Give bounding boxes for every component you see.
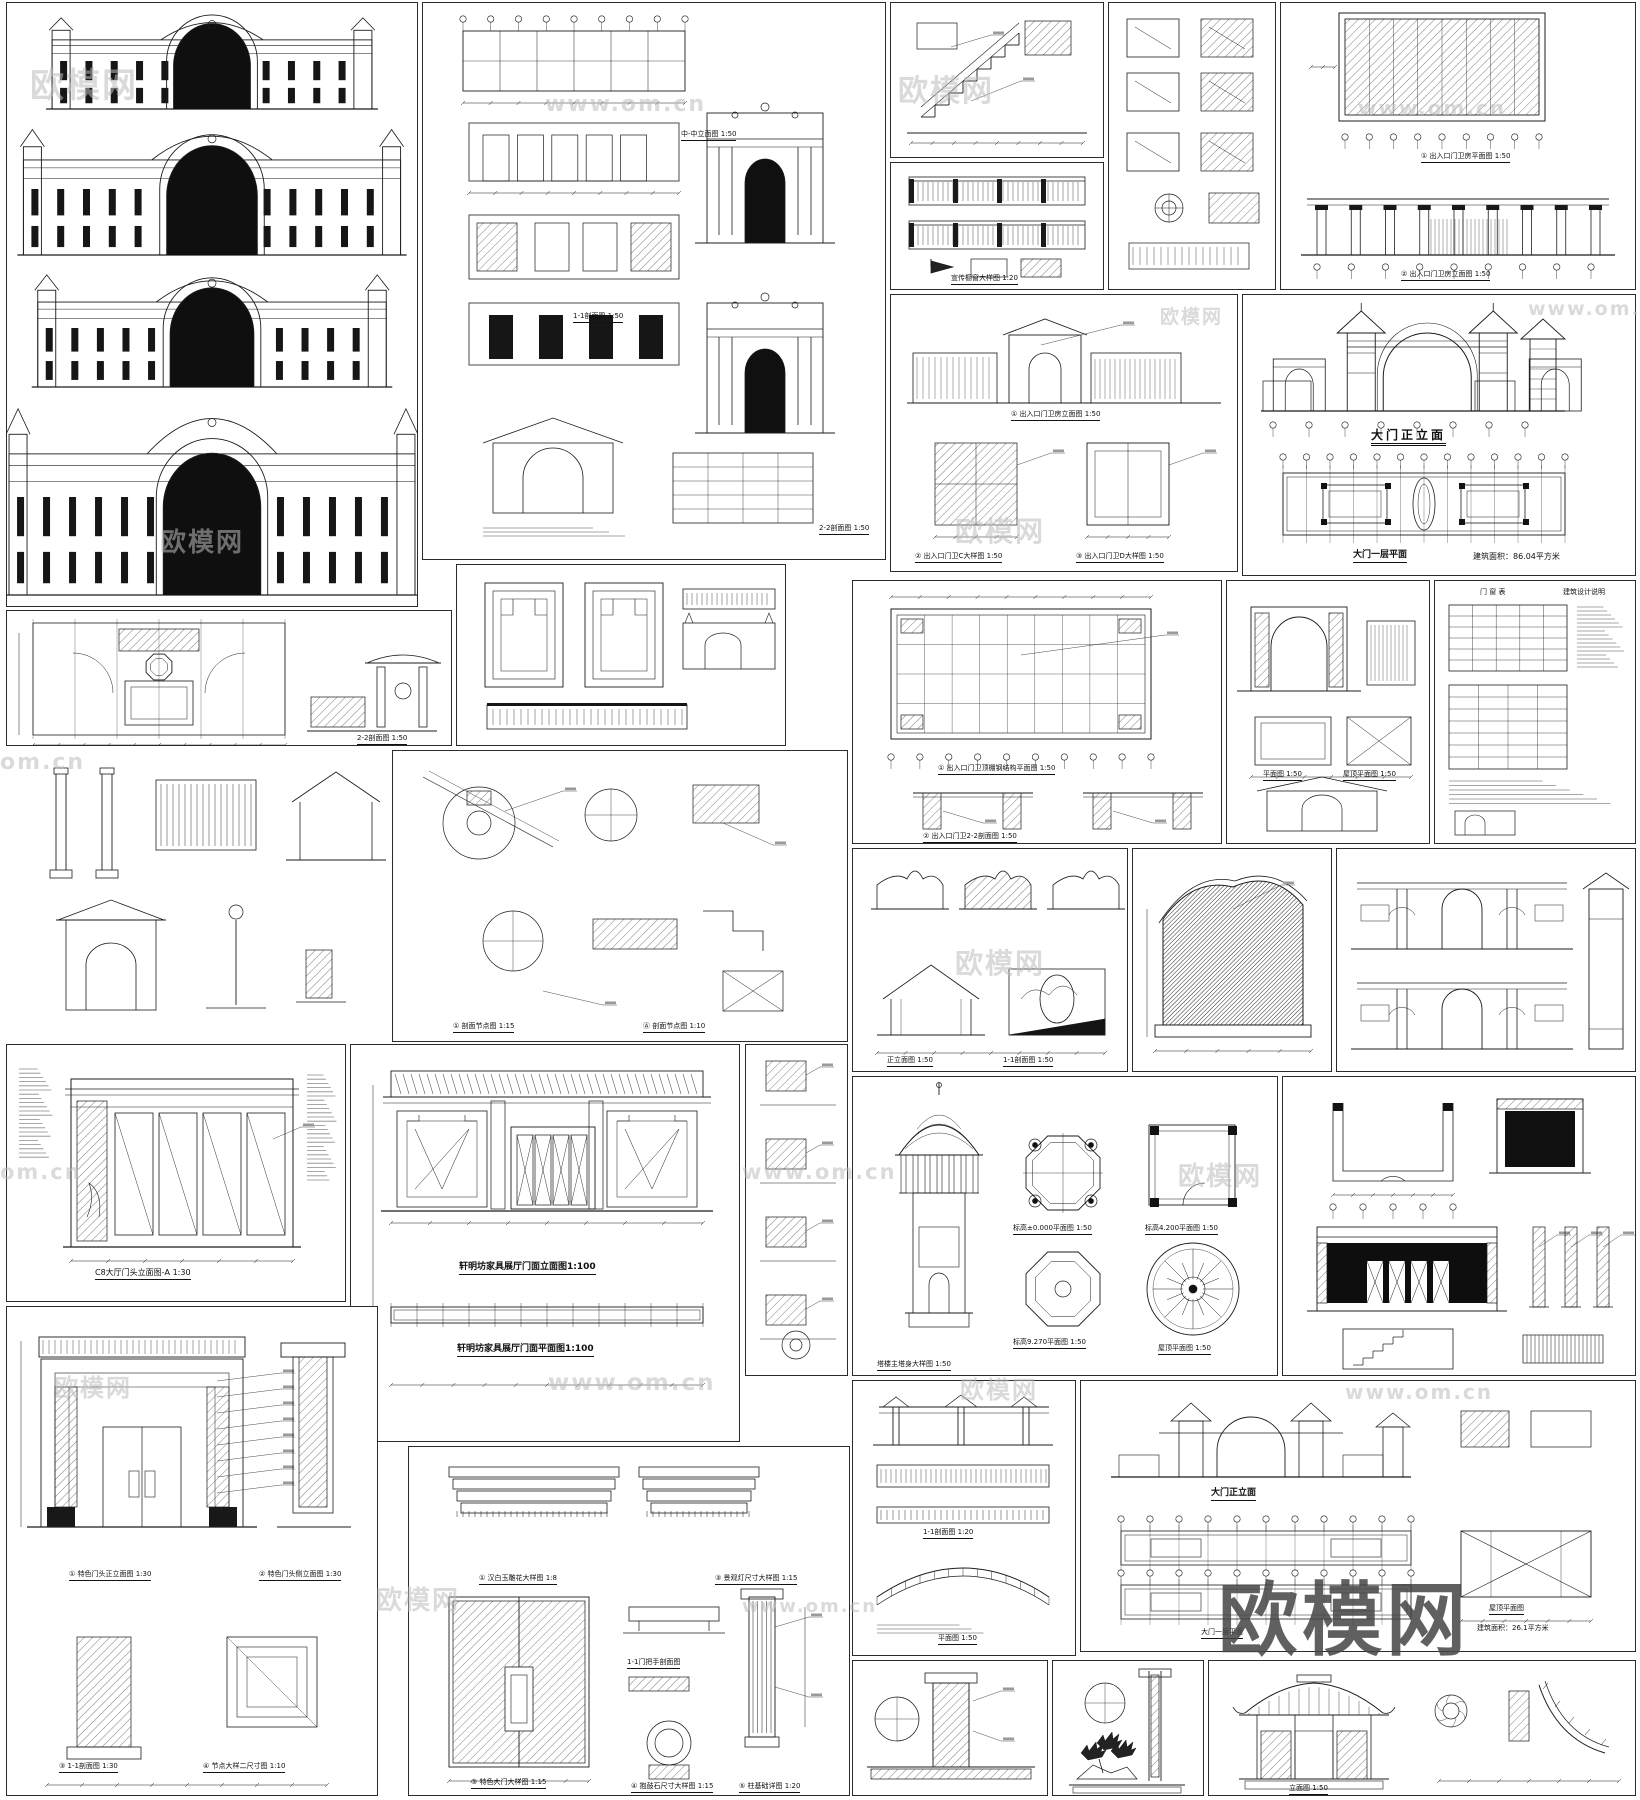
cad-drawing [409, 1447, 849, 1795]
cad-drawing [7, 3, 417, 606]
cad-drawing [891, 295, 1237, 571]
sheet-guardhouse-elevation-details: ① 出入口门卫房立面图 1:50 ② 出入口门卫C大样图 1:50 ③ 出入口门… [890, 294, 1238, 572]
sheet-stair-detail [890, 2, 1104, 158]
drawing-caption: 屋顶平面图 1:50 [1158, 1345, 1211, 1355]
drawing-caption: 屋顶平面图 1:50 [1343, 771, 1396, 781]
drawing-caption: 2-2剖面图 1:50 [357, 735, 407, 745]
sheet-screen-wall: 正立面图 1:50 1-1剖面图 1:50 [852, 848, 1128, 1072]
drawing-caption: ① 特色门头正立面图 1:30 [69, 1571, 151, 1581]
drawing-caption: ② 出入口门卫房立面图 1:50 [1401, 271, 1490, 281]
drawing-caption: ① 出入口门卫房平面图 1:50 [1421, 153, 1510, 163]
cad-drawing [1209, 1661, 1635, 1795]
drawing-caption: ③ 出入口门卫D大样图 1:50 [1076, 553, 1164, 563]
cad-drawing [7, 1045, 345, 1301]
drawing-caption: 立面图 1:50 [1289, 1785, 1328, 1795]
cad-drawing [7, 611, 451, 745]
sheet-gate-elevation-plans: 大门正立面 大门一层平面 屋顶平面图 建筑面积：26.1平方米 [1080, 1380, 1636, 1652]
drawing-caption: 2-2剖面图 1:50 [819, 525, 869, 535]
drawing-caption: 平面图 1:50 [1263, 771, 1302, 781]
sheet-cloud-wall-detail [1132, 848, 1332, 1072]
drawing-caption: 1-1剖面图 1:20 [923, 1529, 973, 1539]
sheet-tower-plans: 标高±0.000平面图 1:50 标高4.200平面图 1:50 标高9.270… [852, 1076, 1278, 1376]
drawing-caption: ② 出入口门卫C大样图 1:50 [915, 553, 1002, 563]
sheet-landscape-wall-tree [1052, 1660, 1204, 1796]
drawing-caption: ① 出入口门卫顶棚钢结构平面图 1:50 [938, 765, 1055, 775]
sheet-xuanmingfang-storefront: 轩明坊家具展厅门面立面图1:100 轩明坊家具展厅门面平面图1:100 [350, 1044, 740, 1442]
drawing-caption: ① 出入口门卫房立面图 1:50 [1011, 411, 1100, 421]
sheet-detail-strip [745, 1044, 848, 1376]
drawing-caption: 1-1门把手剖面图 [627, 1659, 680, 1669]
cad-drawing [1133, 849, 1331, 1071]
cad-drawing [351, 1045, 739, 1441]
cad-drawing [7, 1307, 377, 1795]
sheet-feature-doorway: ① 特色门头正立面图 1:30 ② 特色门头侧立面图 1:30 ③ 1-1剖面图… [6, 1306, 378, 1796]
sheet-pillar-detail [852, 1660, 1048, 1796]
drawing-caption: ④ 节点大样二尺寸图 1:10 [203, 1763, 285, 1773]
sheet-pavilion-eave-details: 立面图 1:50 [1208, 1660, 1636, 1796]
drawing-caption: 平面图 1:50 [938, 1635, 977, 1645]
cad-drawing [746, 1045, 847, 1375]
sheet-c8-hall-storefront: C8大厅门头立面图-A 1:30 [6, 1044, 346, 1302]
drawing-caption: 宣传橱窗大样图 1:20 [951, 275, 1018, 285]
drawing-caption: ③ 1-1剖面图 1:30 [59, 1763, 118, 1773]
drawing-caption: 轩明坊家具展厅门面立面图1:100 [459, 1263, 596, 1275]
cad-drawing [891, 3, 1103, 157]
drawing-caption: 塔楼主塔身大样图 1:50 [877, 1361, 951, 1371]
drawing-caption: 中-中立面图 1:50 [681, 131, 736, 141]
sheet-arch-plan-details: 平面图 1:50 屋顶平面图 1:50 [1226, 580, 1430, 844]
notes-title: 建筑设计说明 [1563, 589, 1605, 598]
drawing-caption: 1-1剖面图 1:50 [573, 313, 623, 323]
drawing-caption: 正立面图 1:50 [887, 1057, 933, 1067]
drawing-caption: ③ 景观灯尺寸大样图 1:15 [715, 1575, 797, 1585]
drawing-caption: 标高±0.000平面图 1:50 [1013, 1225, 1092, 1235]
drawing-caption: ② 出入口门卫2-2剖面图 1:50 [923, 833, 1017, 843]
cad-drawing [853, 1661, 1047, 1795]
sheet-gate-plan-octagon: 2-2剖面图 1:50 [6, 610, 452, 746]
drawing-caption: 大门正立面 [1211, 1489, 1256, 1501]
cad-drawing [1109, 3, 1275, 289]
cad-drawing [1227, 581, 1429, 843]
sheet-marble-door-details: ① 汉白玉雕花大样图 1:8 ③ 景观灯尺寸大样图 1:15 1-1门把手剖面图… [408, 1446, 850, 1796]
sheet-ornate-gate-elevations [6, 2, 418, 607]
sheet-stone-frame-details [456, 564, 786, 746]
cad-drawing [1337, 849, 1635, 1071]
sheet-main-gate-front-elevation: 大门正立面 大门一层平面 建筑面积：86.04平方米 [1242, 294, 1636, 576]
sheet-gate-plan-elevations: 中-中立面图 1:50 1-1剖面图 1:50 2-2剖面图 1:50 [422, 2, 886, 560]
drawing-caption: ④ 抱鼓石尺寸大样图 1:15 [631, 1783, 713, 1793]
drawing-caption: 建筑面积：86.04平方米 [1473, 553, 1560, 563]
drawing-caption: 大门正立面 [1371, 429, 1446, 446]
sheet-bridge-railing: 1-1剖面图 1:20 平面图 1:50 [852, 1380, 1076, 1656]
drawing-caption: ⑤ 柱基础详图 1:20 [739, 1783, 800, 1793]
cad-drawing [457, 565, 785, 745]
cad-drawing [1053, 1661, 1203, 1795]
cad-drawing [853, 1381, 1075, 1655]
drawing-caption: 1-1剖面图 1:50 [1003, 1057, 1053, 1067]
drawing-caption: Ⓐ 剖面节点图 1:10 [643, 1023, 705, 1033]
sheet-door-window-schedule: 门 窗 表 建筑设计说明 [1434, 580, 1636, 844]
sheet-gatehouse-dark-elevations [1282, 1076, 1636, 1376]
cad-drawing [891, 163, 1103, 289]
sheet-section-node-details: ① 剖面节点图 1:15 Ⓐ 剖面节点图 1:10 [392, 750, 848, 1042]
sheet-steel-roof-structure-plan: ① 出入口门卫顶棚钢结构平面图 1:50 ② 出入口门卫2-2剖面图 1:50 [852, 580, 1222, 844]
cad-drawing [853, 581, 1221, 843]
cad-drawing [6, 750, 388, 1040]
cad-collage-page: 中-中立面图 1:50 1-1剖面图 1:50 2-2剖面图 1:50 宣传橱窗… [0, 0, 1640, 1800]
area-note: 建筑面积：26.1平方米 [1477, 1625, 1549, 1634]
drawing-caption: 标高4.200平面图 1:50 [1145, 1225, 1218, 1235]
sheet-fence-details: 宣传橱窗大样图 1:20 [890, 162, 1104, 290]
drawing-caption: ② 特色门头侧立面图 1:30 [259, 1571, 341, 1581]
cad-drawing [423, 3, 885, 559]
sheet-line-sketches [6, 750, 388, 1040]
cad-drawing [1281, 3, 1635, 289]
drawing-caption: 大门一层平面 [1353, 551, 1407, 563]
drawing-caption: C8大厅门头立面图-A 1:30 [95, 1269, 191, 1280]
cad-drawing [1283, 1077, 1635, 1375]
drawing-caption: 标高9.270平面图 1:50 [1013, 1339, 1086, 1349]
cad-drawing [393, 751, 847, 1041]
schedule-title: 门 窗 表 [1480, 589, 1505, 598]
cad-drawing [1435, 581, 1635, 843]
drawing-caption: ③ 特色大门大样图 1:15 [471, 1779, 546, 1789]
drawing-caption: ① 剖面节点图 1:15 [453, 1023, 514, 1033]
drawing-caption: 屋顶平面图 [1489, 1605, 1524, 1615]
sheet-small-details [1108, 2, 1276, 290]
sheet-guardhouse-plan-elevation: ① 出入口门卫房平面图 1:50 ② 出入口门卫房立面图 1:50 [1280, 2, 1636, 290]
drawing-caption: ① 汉白玉雕花大样图 1:8 [479, 1575, 557, 1585]
sheet-double-gate-elevations [1336, 848, 1636, 1072]
cad-drawing [853, 849, 1127, 1071]
cad-drawing [1081, 1381, 1635, 1651]
drawing-caption: 轩明坊家具展厅门面平面图1:100 [457, 1345, 594, 1357]
drawing-caption: 大门一层平面 [1201, 1629, 1243, 1639]
